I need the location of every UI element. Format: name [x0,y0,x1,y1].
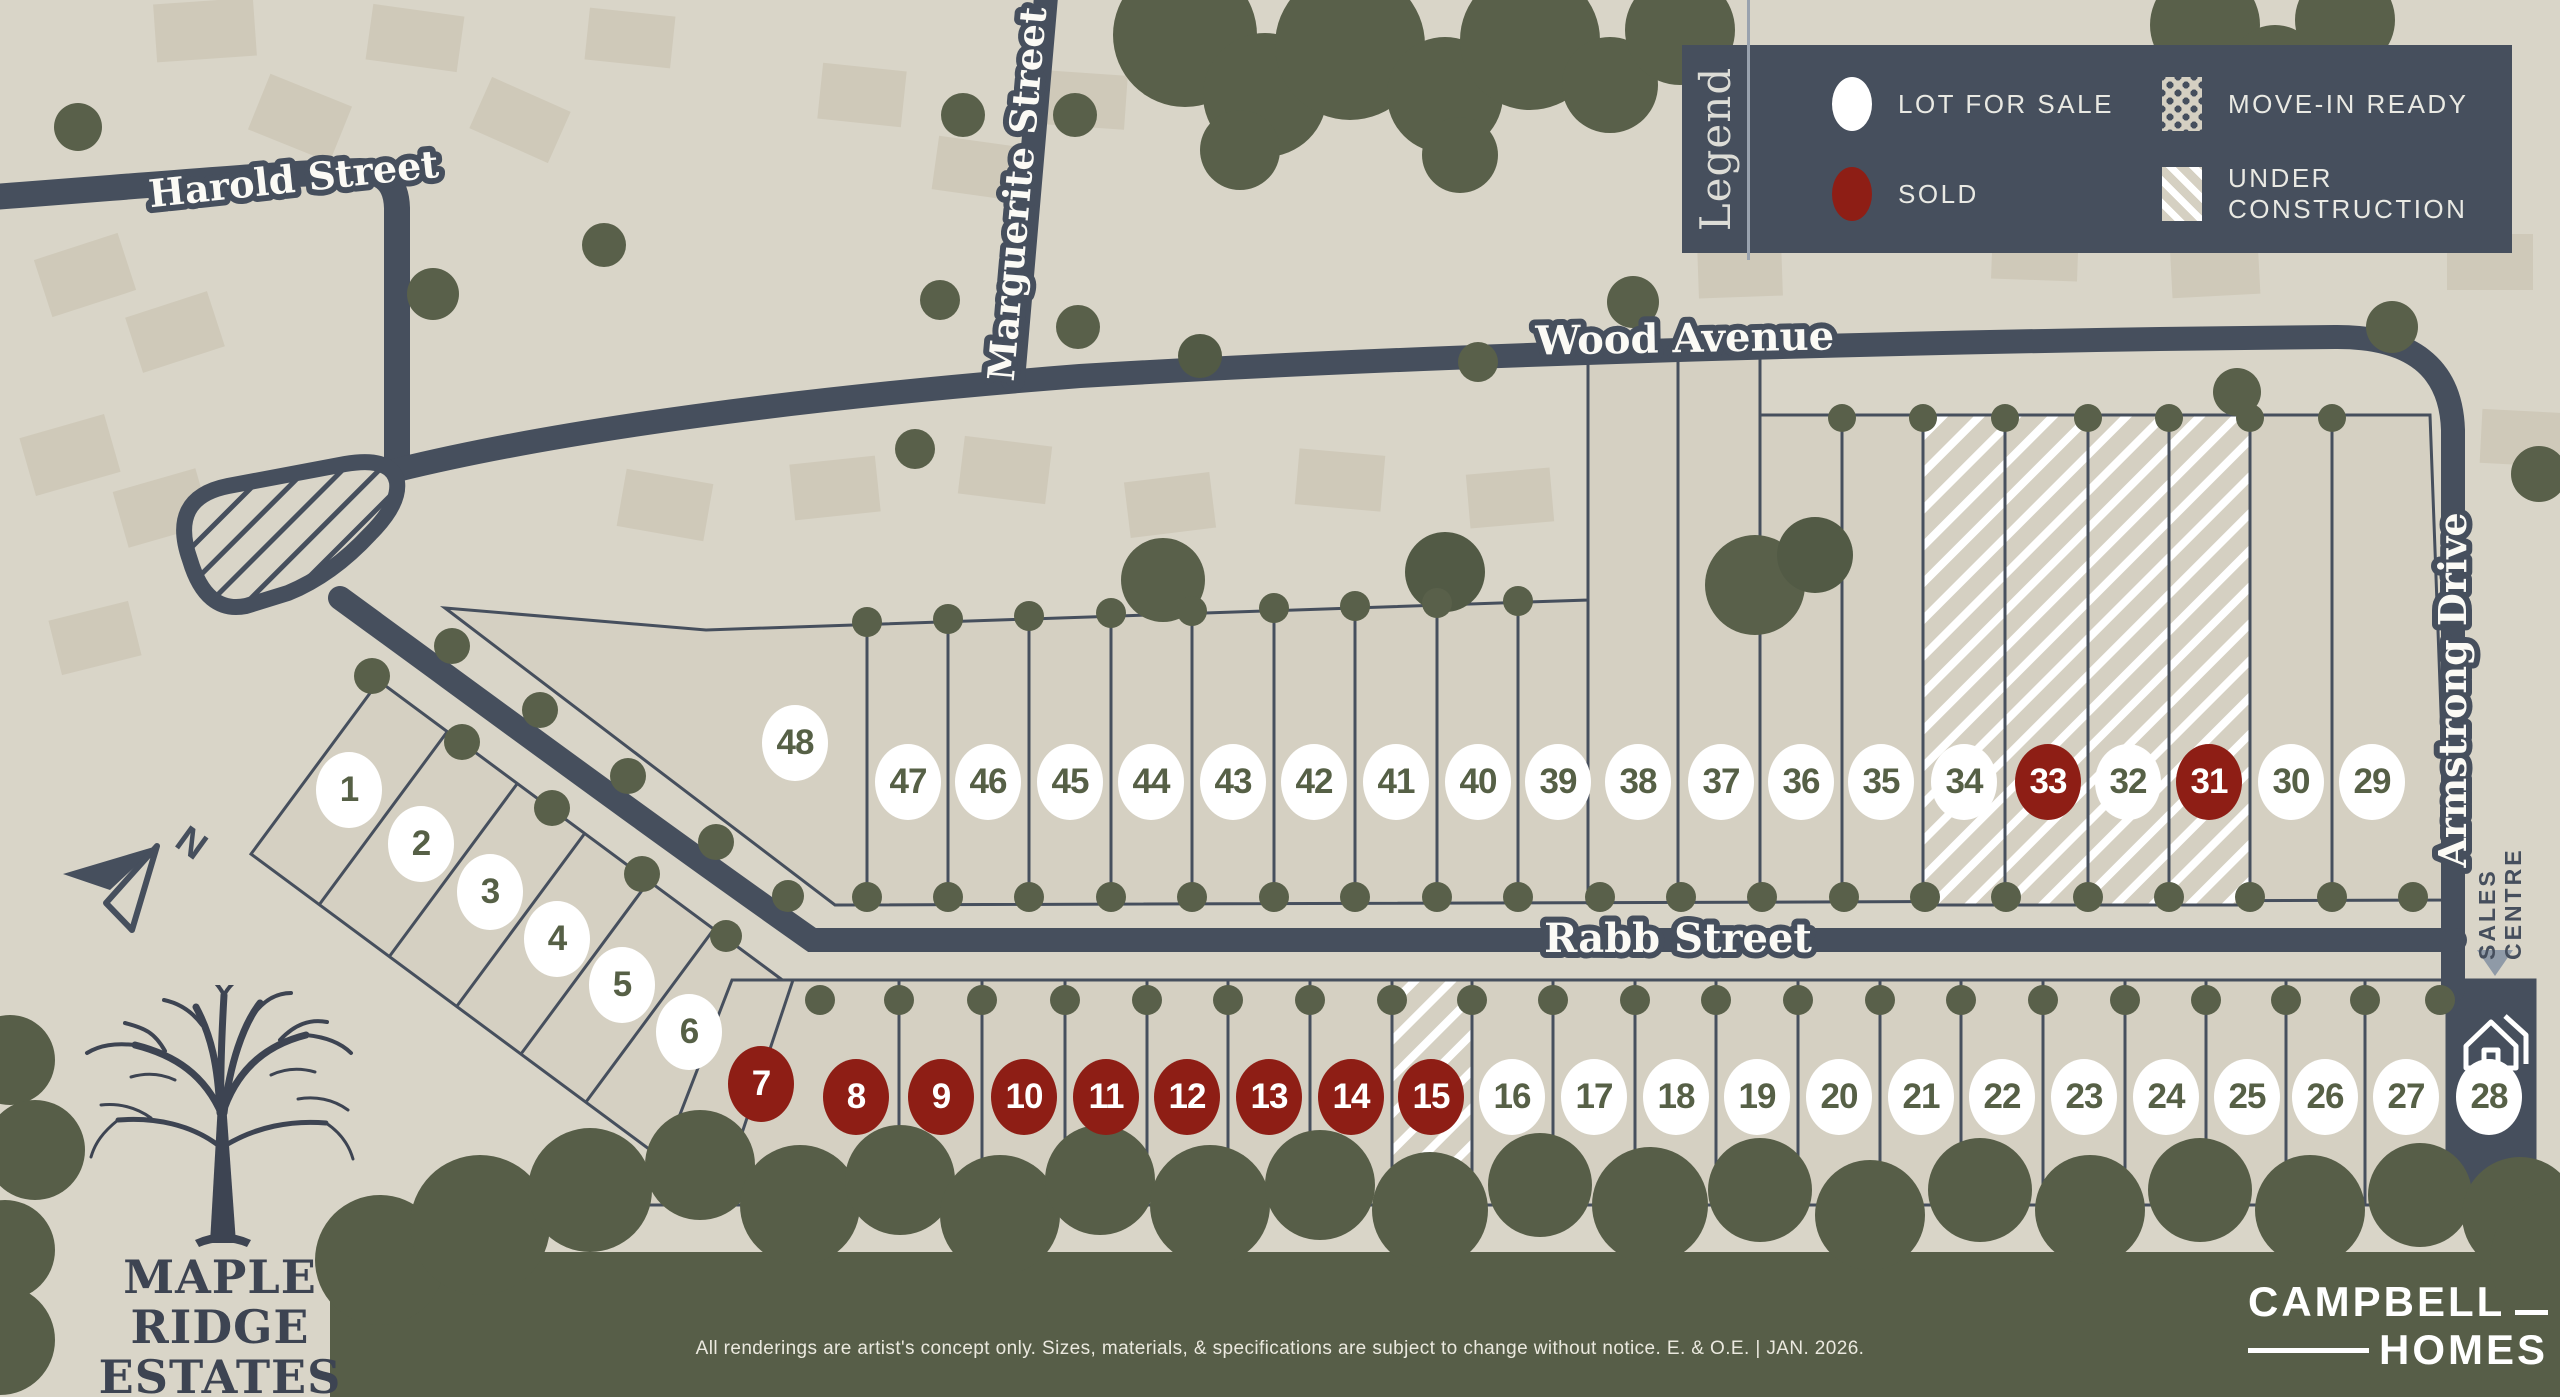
lot-number: 12 [1169,1077,1206,1117]
lot-marker-33[interactable]: 33 [2015,744,2081,820]
lot-marker-5[interactable]: 5 [589,947,655,1023]
lot-number: 24 [2148,1077,2185,1117]
lot-number: 45 [1052,762,1089,802]
development-name-line2: ESTATES [38,1352,402,1397]
lot-number: 3 [481,872,499,912]
lot-number: 39 [1540,762,1577,802]
lot-number: 27 [2388,1077,2425,1117]
lot-marker-48[interactable]: 48 [762,705,828,781]
lot-number: 5 [613,965,631,1005]
lot-marker-8[interactable]: 8 [823,1059,889,1135]
lot-marker-17[interactable]: 17 [1561,1059,1627,1135]
lot-number: 23 [2066,1077,2103,1117]
lot-number: 14 [1333,1077,1370,1117]
lot-marker-11[interactable]: 11 [1073,1059,1139,1135]
lot-number: 33 [2030,762,2067,802]
lot-marker-20[interactable]: 20 [1806,1059,1872,1135]
lot-number: 40 [1460,762,1497,802]
lot-number: 29 [2354,762,2391,802]
lot-number: 22 [1984,1077,2021,1117]
lot-number: 26 [2307,1077,2344,1117]
lot-number: 43 [1215,762,1252,802]
lot-number: 41 [1378,762,1415,802]
lot-marker-36[interactable]: 36 [1768,744,1834,820]
lot-number: 15 [1413,1077,1450,1117]
lot-number: 2 [412,824,430,864]
lot-number: 25 [2229,1077,2266,1117]
lot-number: 32 [2110,762,2147,802]
builder-logo: CAMPBELL HOMES [2248,1280,2548,1372]
builder-logo-rule-top [2515,1310,2548,1315]
lot-marker-43[interactable]: 43 [1200,744,1266,820]
lot-number: 19 [1739,1077,1776,1117]
development-name-line1: MAPLE RIDGE [38,1252,402,1352]
legend-item-sold: SOLD [1832,167,2162,221]
lot-marker-31[interactable]: 31 [2176,744,2242,820]
lot-marker-24[interactable]: 24 [2133,1059,2199,1135]
lot-marker-2[interactable]: 2 [388,806,454,882]
lot-number: 4 [548,919,566,959]
lot-number: 18 [1658,1077,1695,1117]
lot-marker-22[interactable]: 22 [1969,1059,2035,1135]
builder-logo-rule-bottom [2248,1348,2369,1353]
lot-marker-10[interactable]: 10 [991,1059,1057,1135]
development-logo: MAPLE RIDGE ESTATES SMITHS FALLS [38,985,402,1397]
lot-marker-32[interactable]: 32 [2095,744,2161,820]
lot-marker-16[interactable]: 16 [1479,1059,1545,1135]
lot-marker-13[interactable]: 13 [1236,1059,1302,1135]
lot-marker-4[interactable]: 4 [524,901,590,977]
lot-number: 20 [1821,1077,1858,1117]
lot-number: 44 [1133,762,1170,802]
move-swatch-icon [2162,77,2202,131]
lot-marker-40[interactable]: 40 [1445,744,1511,820]
lot-marker-42[interactable]: 42 [1281,744,1347,820]
lot-marker-6[interactable]: 6 [656,994,722,1070]
lot-marker-30[interactable]: 30 [2258,744,2324,820]
lot-number: 1 [340,770,358,810]
lot-number: 34 [1946,762,1983,802]
lot-number: 48 [777,723,814,763]
legend-item-under-construction: UNDER CONSTRUCTION [2162,163,2502,225]
legend-item-move-in-ready: MOVE-IN READY [2162,77,2502,131]
legend: Legend LOT FOR SALESOLDMOVE-IN READYUNDE… [1682,45,2512,253]
builder-name-line2: HOMES [2379,1328,2548,1372]
lot-marker-12[interactable]: 12 [1154,1059,1220,1135]
lot-number: 7 [752,1064,770,1104]
lot-marker-45[interactable]: 45 [1037,744,1103,820]
builder-name-line1: CAMPBELL [2248,1280,2505,1324]
lot-marker-38[interactable]: 38 [1605,744,1671,820]
lot-number: 13 [1251,1077,1288,1117]
legend-item-label: SOLD [1898,179,1979,210]
lot-number: 35 [1863,762,1900,802]
sold-swatch-icon [1832,167,1872,221]
lot-number: 28 [2471,1077,2508,1117]
lot-marker-26[interactable]: 26 [2292,1059,2358,1135]
lot-marker-15[interactable]: 15 [1398,1059,1464,1135]
lot-marker-29[interactable]: 29 [2339,744,2405,820]
disclaimer-text: All renderings are artist's concept only… [580,1338,1980,1360]
available-swatch-icon [1832,77,1872,131]
lot-marker-14[interactable]: 14 [1318,1059,1384,1135]
lot-number: 36 [1783,762,1820,802]
lot-marker-37[interactable]: 37 [1688,744,1754,820]
lot-number: 37 [1703,762,1740,802]
lot-marker-25[interactable]: 25 [2214,1059,2280,1135]
lot-marker-34[interactable]: 34 [1931,744,1997,820]
lot-marker-44[interactable]: 44 [1118,744,1184,820]
lot-marker-28[interactable]: 28 [2456,1059,2522,1135]
legend-item-label: MOVE-IN READY [2228,89,2469,120]
legend-items: LOT FOR SALESOLDMOVE-IN READYUNDER CONST… [1832,45,2502,253]
legend-item-label: LOT FOR SALE [1898,89,2114,120]
lot-marker-41[interactable]: 41 [1363,744,1429,820]
lot-marker-1[interactable]: 1 [316,752,382,828]
lot-marker-18[interactable]: 18 [1643,1059,1709,1135]
lot-marker-23[interactable]: 23 [2051,1059,2117,1135]
lot-marker-7[interactable]: 7 [728,1046,794,1122]
site-plan: N Harold Street Marguerite Street Wood A… [0,0,2560,1397]
legend-item-label: UNDER CONSTRUCTION [2228,163,2502,225]
lot-number: 17 [1576,1077,1613,1117]
lot-number: 8 [847,1077,865,1117]
lot-number: 31 [2191,762,2228,802]
lot-number: 42 [1296,762,1333,802]
lot-number: 16 [1494,1077,1531,1117]
lot-number: 38 [1620,762,1657,802]
lot-marker-46[interactable]: 46 [955,744,1021,820]
lot-number: 11 [1089,1077,1124,1117]
lot-number: 9 [932,1077,950,1117]
lot-marker-19[interactable]: 19 [1724,1059,1790,1135]
lot-marker-47[interactable]: 47 [875,744,941,820]
construction-swatch-icon [2162,167,2202,221]
lot-number: 47 [890,762,927,802]
legend-divider [1747,0,1750,260]
lot-number: 6 [680,1012,698,1052]
legend-title: Legend [1685,45,1745,253]
lot-marker-21[interactable]: 21 [1888,1059,1954,1135]
legend-item-lot-for-sale: LOT FOR SALE [1832,77,2162,131]
lot-marker-3[interactable]: 3 [457,854,523,930]
lot-marker-39[interactable]: 39 [1525,744,1591,820]
lot-marker-9[interactable]: 9 [908,1059,974,1135]
lot-number: 46 [970,762,1007,802]
lot-marker-27[interactable]: 27 [2373,1059,2439,1135]
lot-number: 21 [1903,1077,1940,1117]
lot-number: 10 [1006,1077,1043,1117]
oak-tree-icon [75,985,365,1247]
lot-number: 30 [2273,762,2310,802]
lot-marker-35[interactable]: 35 [1848,744,1914,820]
